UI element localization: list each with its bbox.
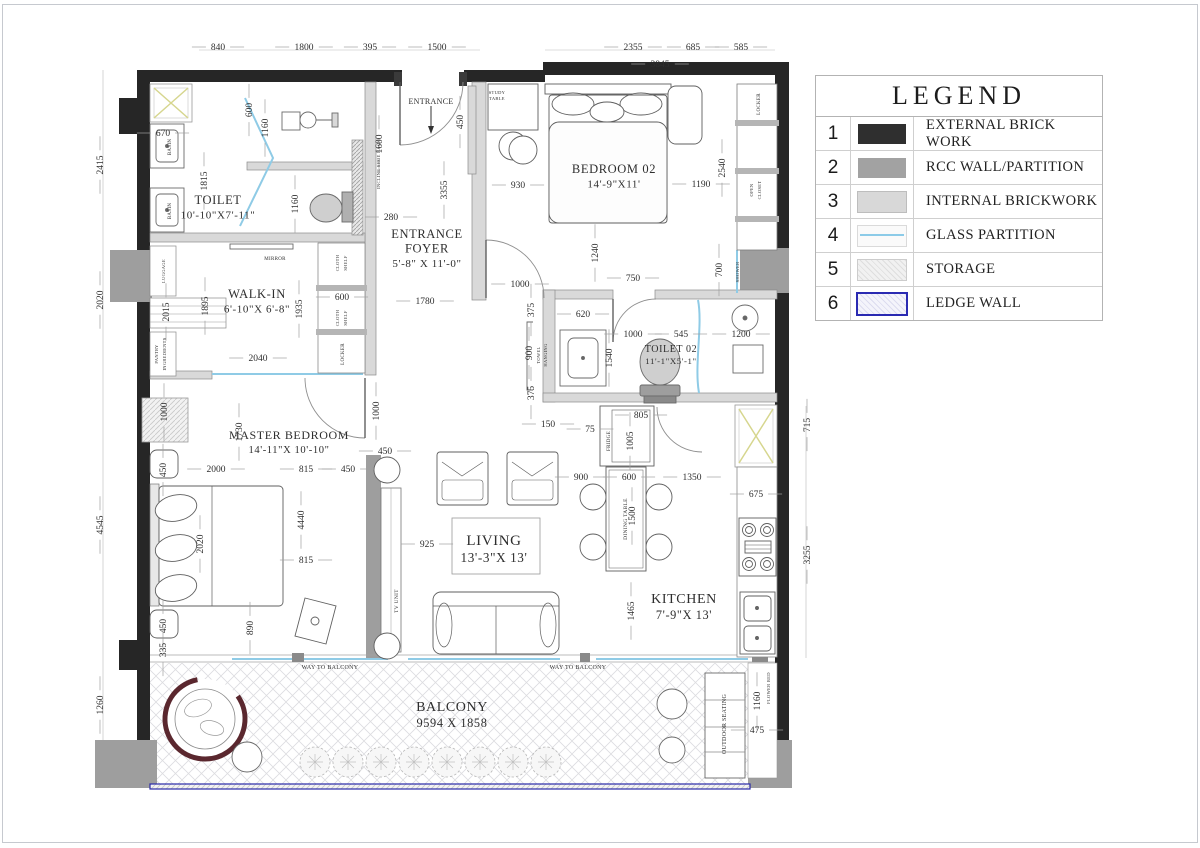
rcc-wall-swatch: [858, 158, 906, 178]
annotation-label: BASIN: [168, 203, 173, 220]
bed02-headboard: [545, 84, 671, 94]
plant: [366, 747, 396, 777]
dimension-label: 1350: [683, 473, 702, 483]
wc-bowl: [310, 194, 342, 222]
dimension-label: 3355: [440, 180, 450, 199]
stove-grill: [745, 541, 771, 553]
dimension-label: 450: [378, 447, 393, 457]
annotation-label: CLOTH: [335, 254, 340, 271]
room-label: 11'-1"X5'-1": [645, 356, 696, 366]
room-label: KITCHEN: [651, 592, 717, 607]
annotation-label: BASIN: [168, 139, 173, 156]
dimension-label: 335: [159, 643, 169, 658]
dimension-label: 2020: [96, 290, 106, 309]
toilet01-fixtures: [150, 112, 353, 249]
dimension-label: 670: [156, 129, 171, 139]
pillar: [374, 633, 400, 659]
stool: [657, 689, 687, 719]
legend-item-number: 5: [816, 253, 851, 286]
dimension-label: 1895: [201, 296, 211, 315]
dimension-label: 545: [674, 330, 689, 340]
dimension-label: 925: [420, 540, 435, 550]
dimension-label: 840: [211, 43, 226, 53]
dimension-label: 1240: [591, 243, 601, 262]
room-label: 9594 X 1858: [417, 716, 488, 730]
legend-item-label: INTERNAL BRICKWORK: [914, 185, 1102, 218]
wc-seat: [640, 385, 680, 396]
dimension-label: 805: [634, 411, 649, 421]
annotation-label: TOWEL: [536, 346, 541, 363]
storage-swatch: [857, 259, 907, 281]
side-table: [232, 742, 262, 772]
dimension-label: 280: [384, 213, 399, 223]
tv-wall: [366, 455, 381, 658]
dimension-label: 1000: [160, 402, 170, 421]
dimension-label: 3845: [651, 60, 670, 70]
legend-row: 2 RCC WALL/PARTITION: [816, 151, 1102, 185]
room-label: TOILET 02: [645, 344, 698, 355]
annotation-label: DINING TABLE: [623, 498, 629, 540]
dimension-label: 4545: [96, 515, 106, 534]
annotation-label: TABLE: [489, 96, 505, 101]
dimension-label: 2415: [96, 155, 106, 174]
dimension-label: 750: [626, 274, 641, 284]
room-label: 7'-9"X 13': [656, 608, 712, 622]
annotation-label: OPEN: [749, 183, 754, 196]
legend-title: LEGEND: [816, 76, 1102, 117]
annotation-labels: BASINBASINLUGGAGEPANTRYINGREDIENTSMIRROR…: [154, 90, 771, 754]
plant: [399, 747, 429, 777]
bench: [668, 86, 702, 144]
legend-item-number: 3: [816, 185, 851, 218]
dimension-label: 475: [750, 726, 765, 736]
bedroom02-furniture: [488, 84, 702, 223]
legend-item-label: LEDGE WALL: [914, 287, 1102, 320]
dimension-label: 450: [159, 463, 169, 478]
dimension-label: 4440: [297, 510, 307, 529]
dimension-label: 1540: [605, 348, 615, 367]
plant: [432, 747, 462, 777]
dimension-label: 1000: [511, 280, 530, 290]
legend-row: 3 INTERNAL BRICKWORK: [816, 185, 1102, 219]
legend: LEGEND 1 EXTERNAL BRICK WORK 2 RCC WALL/…: [815, 75, 1103, 321]
dimension-label: 600: [622, 473, 637, 483]
armchair: [437, 452, 488, 505]
legend-row: 4 GLASS PARTITION: [816, 219, 1102, 253]
legend-item-number: 6: [816, 287, 851, 320]
annotation-label: CLOTH: [335, 309, 340, 326]
dimension-label: 1800: [295, 43, 314, 53]
legend-item-number: 4: [816, 219, 851, 252]
plant: [498, 747, 528, 777]
dimension-label: 815: [299, 556, 314, 566]
annotation-label: MIRROR: [264, 257, 286, 262]
plant: [465, 747, 495, 777]
shower-point: [282, 112, 300, 130]
dimension-label: 1160: [753, 691, 763, 710]
dimension-label: 3255: [803, 545, 813, 564]
annotation-label: LOCKER: [341, 343, 346, 365]
dimension-label: 1815: [200, 171, 210, 190]
annotation-label: LUGGAGE: [161, 259, 166, 283]
dimension-label: 1260: [96, 695, 106, 714]
dimension-label: 700: [715, 263, 725, 278]
pillow: [590, 102, 624, 122]
shower-tray: [733, 345, 763, 373]
dimension-label: 1500: [428, 43, 447, 53]
dimension-label: 685: [686, 43, 701, 53]
external-brick-swatch: [858, 124, 906, 144]
annotation-label: FRIDGE: [607, 431, 612, 451]
dimension-label: 375: [527, 386, 537, 401]
dimension-label: 890: [246, 621, 256, 636]
plant: [333, 747, 363, 777]
shower-head: [300, 112, 316, 128]
annotation-label: PANTRY: [154, 344, 159, 364]
annotation-label: STUDY: [489, 90, 506, 95]
annotation-label: ENTRANCE: [408, 97, 453, 106]
glass-partition-swatch: [857, 225, 907, 247]
dimension-label: 2355: [624, 43, 643, 53]
legend-row: 5 STORAGE: [816, 253, 1102, 287]
ledge-wall-swatch: [856, 292, 908, 316]
dimension-label: 1160: [291, 194, 301, 213]
side-lamp: [509, 136, 537, 164]
dimension-label: 2000: [207, 465, 226, 475]
dimension-label: 1160: [261, 118, 271, 137]
room-label: ENTRANCE: [391, 227, 462, 241]
room-label: 14'-11"X 10'-10": [248, 445, 329, 456]
dimension-label: 600: [335, 293, 350, 303]
room-label: WALK-IN: [228, 287, 286, 301]
pillow: [552, 93, 594, 115]
dimension-label: 375: [527, 303, 537, 318]
dimension-label: 450: [159, 619, 169, 634]
room-label: 14'-9"X11': [587, 179, 640, 191]
pillar: [374, 457, 400, 483]
dimension-label: 1465: [627, 601, 637, 620]
mirror: [230, 244, 293, 249]
annotation-label: HANGING: [543, 343, 548, 367]
floor-plan-sheet: 8401800395150023556855853845241520204545…: [0, 0, 1200, 848]
internal-brick-swatch: [857, 191, 907, 213]
annotation-label: LOCKER: [757, 93, 762, 115]
legend-item-label: GLASS PARTITION: [914, 219, 1102, 252]
dimension-label: 620: [576, 310, 591, 320]
dimension-label: 1200: [732, 330, 751, 340]
dimension-label: 1000: [624, 330, 643, 340]
annotation-label: CLOSET: [757, 181, 762, 200]
dimension-label: 2015: [162, 302, 172, 321]
dimension-label: 585: [734, 43, 749, 53]
flower-bed: [748, 663, 777, 778]
dimension-label: 2540: [718, 158, 728, 177]
room-label: 13'-3"X 13': [461, 550, 528, 565]
door-frames: [394, 72, 467, 86]
dimension-label: 675: [749, 490, 764, 500]
wc-tank: [342, 192, 353, 222]
dimension-label: 2020: [196, 534, 206, 553]
legend-row: 1 EXTERNAL BRICK WORK: [816, 117, 1102, 151]
legend-item-number: 1: [816, 117, 851, 150]
room-label: 6'-10"X 6'-8": [224, 304, 290, 316]
annotation-label: SHOWER: [735, 262, 740, 283]
dimension-label: 450: [456, 115, 466, 130]
dimension-label: 1500: [628, 506, 638, 525]
annotation-label: WAY TO BALCONY: [550, 665, 607, 671]
annotation-label: SHELF: [343, 310, 348, 325]
dining-chair: [646, 484, 672, 510]
legend-item-label: STORAGE: [914, 253, 1102, 286]
legend-item-label: EXTERNAL BRICK WORK: [914, 117, 1102, 150]
annotation-label: WAY TO BALCONY: [302, 665, 359, 671]
dimension-label: 395: [363, 43, 378, 53]
dining-chair: [580, 534, 606, 560]
pillow: [620, 93, 662, 115]
room-label: 5'-8" X 11'-0": [392, 258, 461, 270]
legend-item-number: 2: [816, 151, 851, 184]
annotation-label: INGREDIENTS: [162, 337, 167, 370]
duct-shaft-toilet: [150, 84, 192, 122]
dimension-label: 900: [574, 473, 589, 483]
dining-chair: [580, 484, 606, 510]
room-label: FOYER: [405, 242, 449, 256]
dimension-label: 815: [299, 465, 314, 475]
plant: [300, 747, 330, 777]
plant: [531, 747, 561, 777]
dimension-label: 900: [525, 346, 535, 361]
kitchen-door-arc: [657, 407, 702, 452]
dimension-label: 1935: [295, 299, 305, 318]
hatched-wall: [352, 140, 363, 235]
room-label: LIVING: [466, 533, 521, 549]
legend-row: 6 LEDGE WALL: [816, 287, 1102, 320]
armchair: [507, 452, 558, 505]
dimension-label: 450: [341, 465, 356, 475]
annotation-label: OUTDOOR SEATING: [722, 693, 728, 754]
room-label: BALCONY: [416, 700, 488, 715]
annotation-label: SHELF: [343, 255, 348, 270]
dimension-label: 930: [511, 181, 526, 191]
wc-base: [644, 396, 676, 403]
room-label: TOILET: [194, 193, 241, 207]
dimension-label: 1005: [626, 431, 636, 450]
legend-item-label: RCC WALL/PARTITION: [914, 151, 1102, 184]
dimension-label: 1000: [372, 401, 382, 420]
dimension-label: 75: [585, 425, 595, 435]
dimension-label: 715: [803, 418, 813, 433]
dimension-label: 2040: [249, 354, 268, 364]
annotation-label: FLOWER BED: [766, 672, 771, 704]
room-label: MASTER BEDROOM: [229, 428, 349, 442]
room-label: BEDROOM 02: [572, 162, 656, 176]
dining-chair: [646, 534, 672, 560]
ledge-wall: [150, 784, 750, 789]
annotation-label: TV UNIT: [394, 589, 400, 613]
dimension-label: 600: [245, 103, 255, 118]
dimension-label: 150: [541, 420, 556, 430]
duct-shaft-kitchen: [735, 405, 777, 467]
annotation-label: INCLINE SHOE RACK: [376, 139, 381, 189]
entrance-arrow: [428, 106, 434, 134]
stool: [659, 737, 685, 763]
dimension-label: 1190: [692, 180, 711, 190]
dimension-label: 1780: [416, 297, 435, 307]
room-label: 10'-10"X7'-11": [181, 210, 256, 222]
